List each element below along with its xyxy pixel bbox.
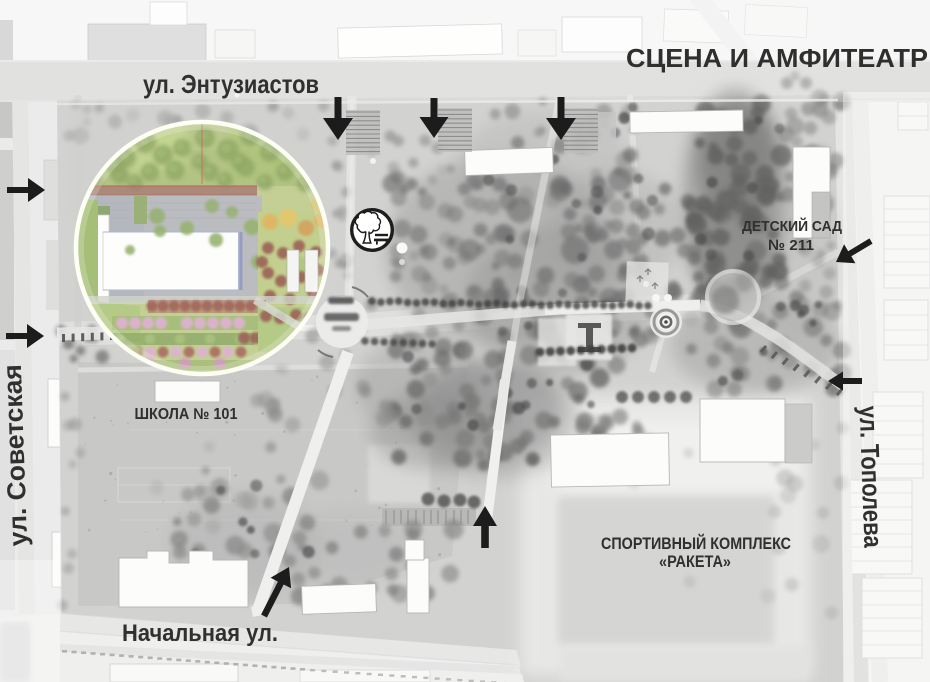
svg-text:Начальная ул.: Начальная ул. (122, 620, 278, 647)
svg-text:№ 211: № 211 (768, 237, 814, 254)
svg-text:СЦЕНА И АМФИТЕАТР: СЦЕНА И АМФИТЕАТР (626, 43, 928, 73)
svg-text:ДЕТСКИЙ САД: ДЕТСКИЙ САД (742, 217, 842, 235)
svg-text:ул. Тополева: ул. Тополева (854, 405, 889, 548)
svg-text:ул. Энтузиастов: ул. Энтузиастов (143, 69, 319, 99)
svg-text:СПОРТИВНЫЙ КОМПЛЕКС: СПОРТИВНЫЙ КОМПЛЕКС (601, 534, 791, 553)
svg-text:«РАКЕТА»: «РАКЕТА» (659, 553, 731, 571)
svg-text:ШКОЛА № 101: ШКОЛА № 101 (135, 406, 238, 423)
